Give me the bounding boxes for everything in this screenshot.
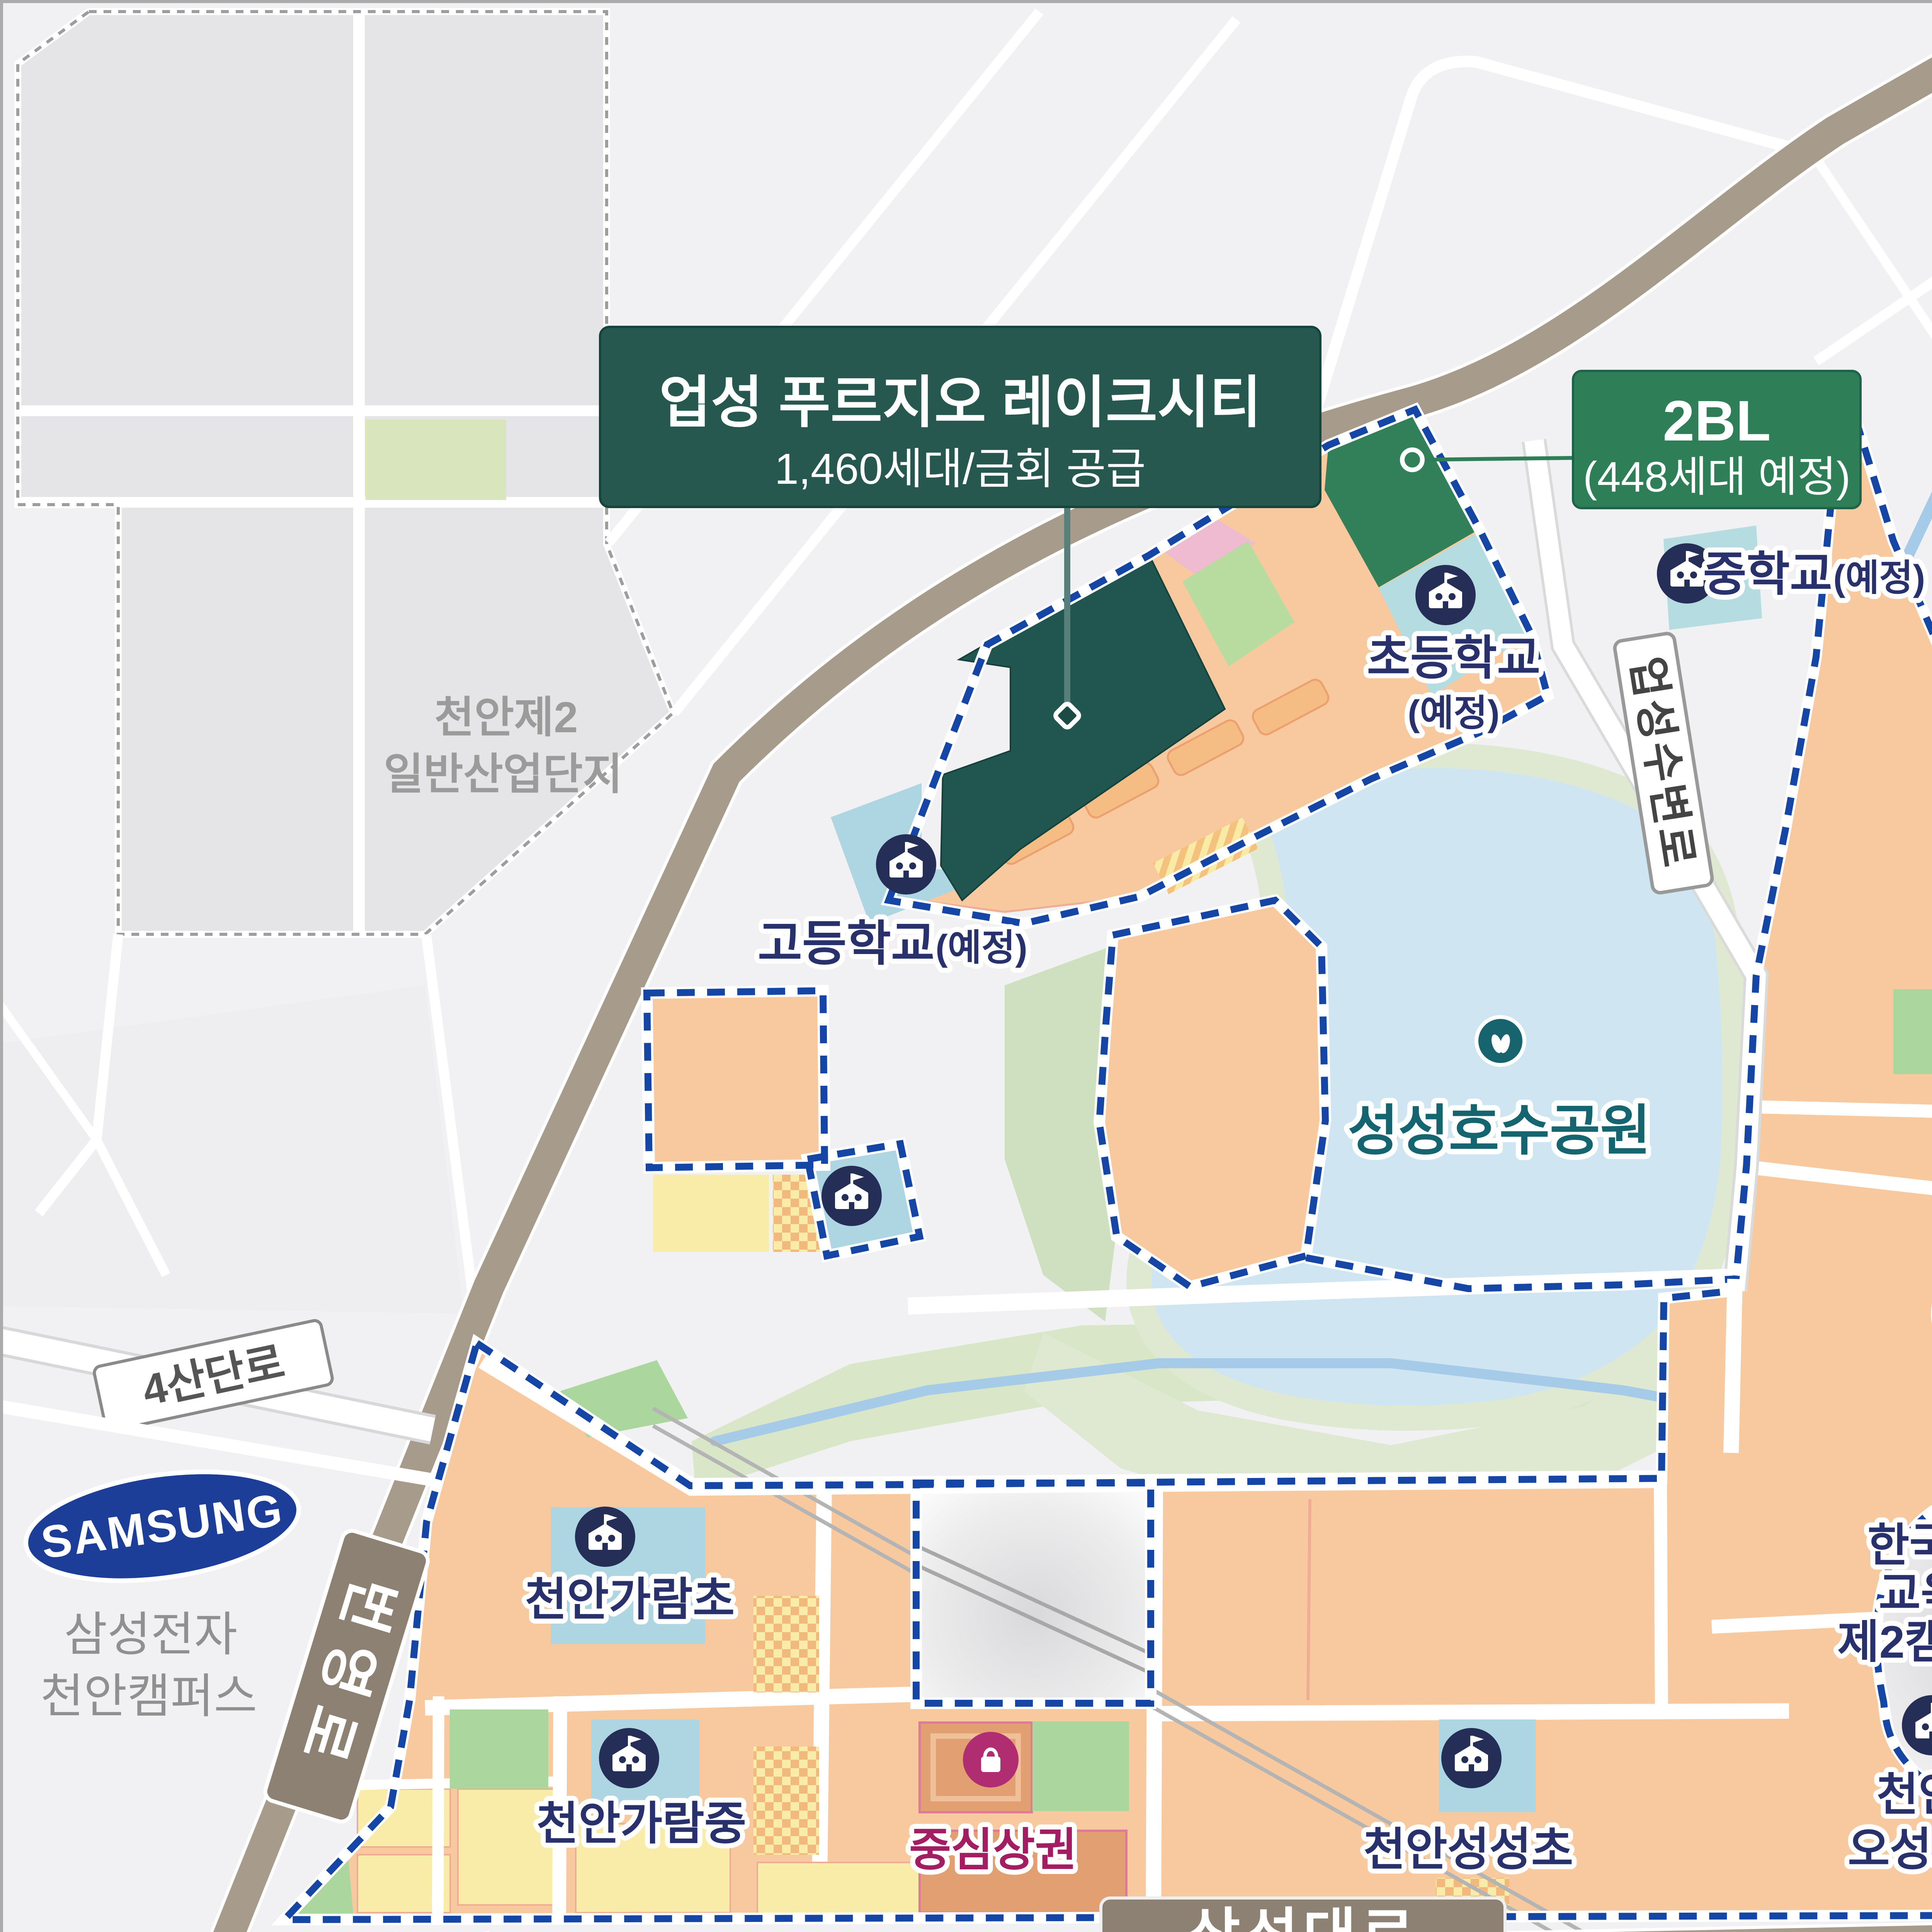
svg-text:한국기술: 한국기술 [1867, 1520, 1932, 1571]
svg-text:천안성성초: 천안성성초 [1364, 1824, 1573, 1875]
svg-text:2BL: 2BL [1663, 389, 1771, 453]
svg-text:일반산업단지: 일반산업단지 [384, 750, 622, 798]
svg-text:업성 푸르지오 레이크시티: 업성 푸르지오 레이크시티 [659, 371, 1262, 434]
svg-text:(448세대 예정): (448세대 예정) [1583, 453, 1850, 501]
svg-text:삼성전자: 삼성전자 [64, 1608, 238, 1661]
svg-text:교육대: 교육대 [1879, 1568, 1932, 1619]
svg-text:천안가람중: 천안가람중 [537, 1798, 747, 1849]
svg-text:천안가람초: 천안가람초 [525, 1574, 735, 1625]
svg-text:중심상권: 중심상권 [909, 1825, 1077, 1876]
svg-text:천안캠퍼스: 천안캠퍼스 [40, 1670, 257, 1723]
svg-text:천안: 천안 [1876, 1769, 1932, 1820]
svg-text:천안제2: 천안제2 [434, 693, 578, 742]
svg-text:삼성대로: 삼성대로 [1187, 1903, 1419, 1932]
svg-text:(예정): (예정) [1408, 693, 1500, 734]
svg-text:1,460세대/금회 공급: 1,460세대/금회 공급 [775, 445, 1146, 493]
svg-text:제2캠퍼스: 제2캠퍼스 [1837, 1617, 1932, 1668]
svg-text:오성고: 오성고 [1848, 1824, 1932, 1875]
svg-text:성성호수공원: 성성호수공원 [1348, 1100, 1651, 1162]
svg-text:초등학교: 초등학교 [1367, 632, 1541, 684]
